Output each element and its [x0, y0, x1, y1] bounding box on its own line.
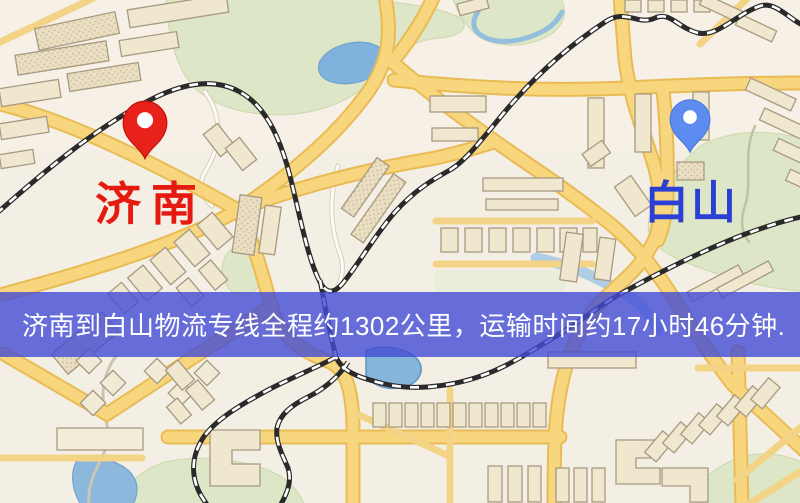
origin-city-label: 济南 [80, 181, 212, 227]
destination-pin-icon[interactable] [669, 96, 711, 156]
destination-city-label: 白山 [630, 180, 750, 225]
route-info-banner: 济南到白山物流专线全程约1302公里，运输时间约17小时46分钟. [0, 292, 800, 357]
route-info-text: 济南到白山物流专线全程约1302公里，运输时间约17小时46分钟. [0, 306, 785, 343]
map-canvas[interactable] [0, 0, 800, 503]
origin-pin-icon[interactable] [122, 98, 168, 162]
map-screenshot: 济南 白山 济南到白山物流专线全程约1302公里，运输时间约17小时46分钟. [0, 0, 800, 503]
